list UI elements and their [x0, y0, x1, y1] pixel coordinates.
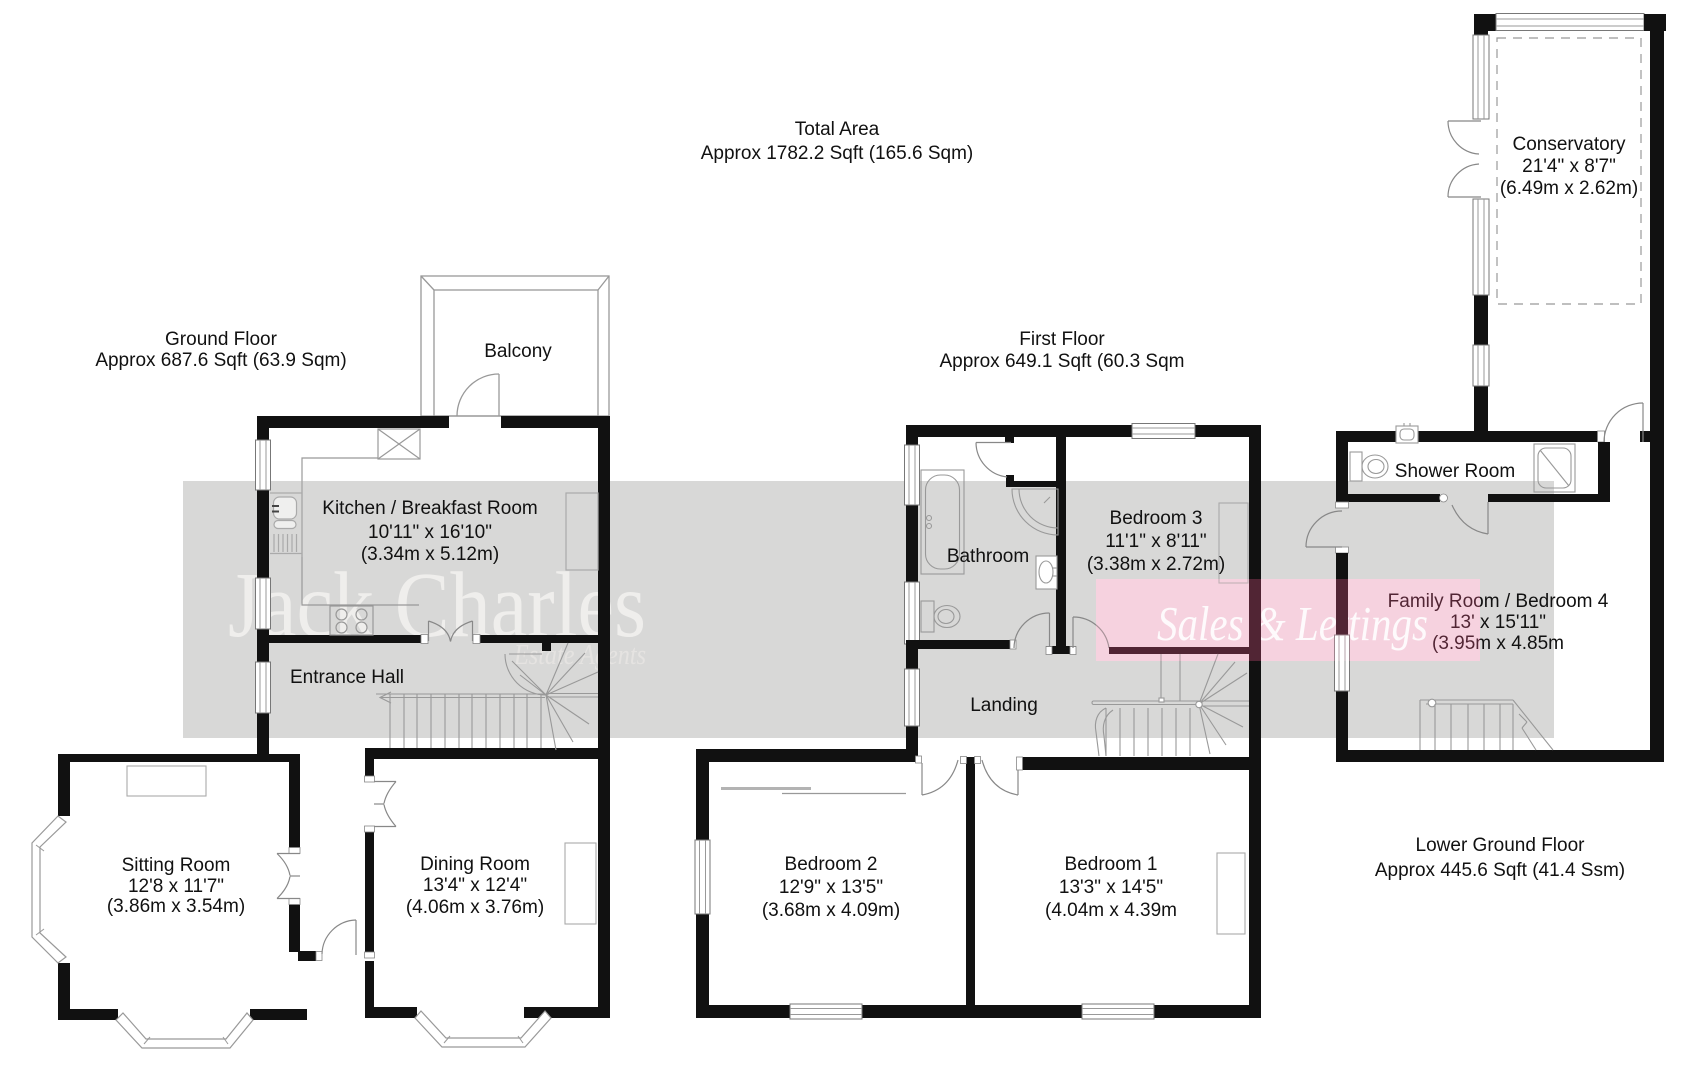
svg-text:(3.34m x 5.12m): (3.34m x 5.12m)	[361, 544, 499, 565]
svg-text:Approx 649.1 Sqft (60.3 Sqm: Approx 649.1 Sqft (60.3 Sqm	[939, 351, 1184, 372]
svg-text:(4.06m x 3.76m): (4.06m x 3.76m)	[406, 897, 544, 918]
svg-text:Estate Agents: Estate Agents	[513, 639, 646, 671]
svg-text:(6.49m x 2.62m): (6.49m x 2.62m)	[1500, 178, 1638, 199]
svg-text:Landing: Landing	[970, 695, 1038, 716]
svg-text:Approx 445.6 Sqft (41.4 Ssm): Approx 445.6 Sqft (41.4 Ssm)	[1375, 860, 1625, 881]
svg-text:Approx 1782.2 Sqft (165.6 Sqm): Approx 1782.2 Sqft (165.6 Sqm)	[701, 143, 974, 164]
svg-text:13'4" x 12'4": 13'4" x 12'4"	[423, 875, 527, 896]
svg-text:12'8 x 11'7": 12'8 x 11'7"	[128, 876, 224, 897]
svg-text:10'11" x 16'10": 10'11" x 16'10"	[368, 522, 492, 543]
svg-text:11'1" x 8'11": 11'1" x 8'11"	[1105, 531, 1206, 552]
svg-text:Dining Room: Dining Room	[420, 854, 530, 875]
svg-text:12'9" x 13'5": 12'9" x 13'5"	[779, 877, 883, 898]
svg-text:Ground Floor: Ground Floor	[165, 329, 278, 350]
svg-text:Bathroom: Bathroom	[947, 546, 1029, 567]
svg-text:Lower Ground Floor: Lower Ground Floor	[1416, 835, 1586, 856]
svg-text:Balcony: Balcony	[484, 341, 552, 362]
svg-text:(3.68m x 4.09m): (3.68m x 4.09m)	[762, 900, 900, 921]
svg-text:13'3" x 14'5": 13'3" x 14'5"	[1059, 877, 1163, 898]
svg-text:Bedroom 2: Bedroom 2	[785, 854, 878, 875]
svg-text:21'4" x 8'7": 21'4" x 8'7"	[1522, 156, 1616, 177]
svg-text:Kitchen / Breakfast Room: Kitchen / Breakfast Room	[322, 498, 537, 519]
svg-text:Shower Room: Shower Room	[1395, 461, 1515, 482]
svg-text:Approx 687.6 Sqft (63.9 Sqm): Approx 687.6 Sqft (63.9 Sqm)	[95, 350, 346, 371]
svg-text:Bedroom 1: Bedroom 1	[1065, 854, 1158, 875]
svg-text:Conservatory: Conservatory	[1513, 134, 1626, 155]
svg-text:Total Area: Total Area	[795, 119, 880, 140]
svg-text:(3.38m x 2.72m): (3.38m x 2.72m)	[1087, 554, 1225, 575]
svg-text:First Floor: First Floor	[1019, 329, 1105, 350]
svg-text:Sitting Room: Sitting Room	[122, 855, 231, 876]
svg-text:Bedroom 3: Bedroom 3	[1110, 508, 1203, 529]
svg-text:(3.86m x 3.54m): (3.86m x 3.54m)	[107, 896, 245, 917]
svg-text:Entrance Hall: Entrance Hall	[290, 667, 404, 688]
svg-text:(4.04m x 4.39m: (4.04m x 4.39m	[1045, 900, 1177, 921]
